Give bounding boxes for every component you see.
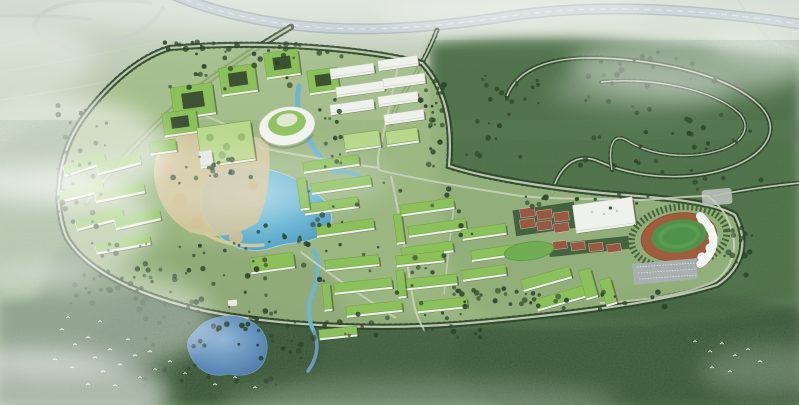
tree xyxy=(478,328,482,332)
tree xyxy=(495,137,498,140)
tree xyxy=(179,246,182,249)
tree xyxy=(263,308,269,314)
tree xyxy=(317,277,322,282)
tree xyxy=(650,295,654,299)
tree xyxy=(634,159,638,163)
tree xyxy=(200,266,205,271)
tree xyxy=(294,321,296,323)
tree xyxy=(553,299,558,304)
tree xyxy=(536,79,539,82)
tree xyxy=(462,304,467,309)
tree xyxy=(233,242,236,245)
tree xyxy=(525,200,530,205)
tree xyxy=(203,252,206,255)
tree xyxy=(441,82,447,88)
tree xyxy=(705,148,708,151)
tree xyxy=(456,336,459,339)
tree xyxy=(311,335,317,341)
tree xyxy=(223,249,227,253)
tree xyxy=(195,40,200,45)
tree xyxy=(485,135,491,141)
tree xyxy=(598,307,602,311)
tree xyxy=(458,233,463,238)
tree xyxy=(244,291,247,294)
tree xyxy=(474,151,480,157)
tree xyxy=(316,50,322,56)
tree xyxy=(186,85,191,90)
tree xyxy=(529,301,532,304)
tree xyxy=(751,234,754,237)
tree xyxy=(254,266,260,272)
tree xyxy=(444,193,449,198)
tree xyxy=(256,230,260,234)
tree xyxy=(452,293,455,296)
tree xyxy=(458,223,463,228)
tree xyxy=(275,384,277,386)
tree xyxy=(692,179,697,184)
tree xyxy=(463,300,466,303)
tree xyxy=(418,97,424,103)
tree xyxy=(497,123,502,128)
tree xyxy=(339,54,343,58)
tree xyxy=(435,102,438,105)
haze-band-center xyxy=(30,145,390,215)
tree xyxy=(459,291,465,297)
tree xyxy=(325,49,330,54)
tree xyxy=(437,139,442,144)
tree xyxy=(262,257,267,262)
tree xyxy=(662,304,668,310)
tree xyxy=(187,367,190,370)
plaza-garden-circle xyxy=(229,230,243,244)
tree xyxy=(198,244,202,248)
tree xyxy=(355,203,359,207)
tree xyxy=(237,343,240,346)
tree xyxy=(306,242,311,247)
tree xyxy=(644,130,648,134)
tree xyxy=(419,301,423,305)
tree xyxy=(655,289,661,295)
tree xyxy=(322,280,325,283)
tree xyxy=(298,43,302,47)
tree xyxy=(416,265,421,270)
tree xyxy=(562,306,566,310)
tree xyxy=(689,132,694,137)
tree xyxy=(425,267,427,269)
tree xyxy=(475,119,479,123)
tree xyxy=(341,221,343,223)
tennis-court xyxy=(553,222,569,233)
tree xyxy=(135,266,140,271)
tree xyxy=(474,332,477,335)
tree xyxy=(324,142,328,146)
tree xyxy=(257,56,263,62)
tree xyxy=(322,323,327,328)
tree xyxy=(360,324,363,327)
tree xyxy=(283,46,289,52)
tree xyxy=(377,246,379,248)
tree xyxy=(426,162,432,168)
tree xyxy=(460,313,462,315)
gym-roof-vent xyxy=(603,213,606,216)
tree xyxy=(228,306,230,308)
tree xyxy=(531,85,535,89)
tree xyxy=(742,253,748,259)
tree xyxy=(583,157,589,163)
tree xyxy=(731,138,734,141)
tree xyxy=(299,357,302,360)
tree xyxy=(211,282,215,286)
tree xyxy=(478,335,482,339)
tree xyxy=(162,367,167,372)
tree xyxy=(246,322,251,327)
tree xyxy=(325,250,328,253)
tree xyxy=(333,98,337,102)
tree xyxy=(263,223,267,227)
tree xyxy=(671,132,674,135)
tree xyxy=(744,272,749,277)
tree xyxy=(598,135,602,139)
tree xyxy=(222,56,227,61)
tree xyxy=(537,202,542,207)
canopy-scallop xyxy=(697,214,706,223)
aerial-render-viewport xyxy=(0,0,799,405)
tree xyxy=(202,343,206,347)
tree xyxy=(278,45,282,49)
tree xyxy=(578,163,583,168)
tree xyxy=(623,301,628,306)
tree xyxy=(684,117,689,122)
tree xyxy=(434,123,436,125)
tree xyxy=(501,286,506,291)
tree xyxy=(264,263,268,267)
tree xyxy=(296,348,302,354)
tree xyxy=(446,186,451,191)
courtyard-building xyxy=(162,109,201,139)
tree xyxy=(410,271,414,275)
tennis-court xyxy=(553,211,569,222)
tree xyxy=(268,376,274,382)
tree xyxy=(531,291,536,296)
tree xyxy=(301,262,306,267)
tree xyxy=(198,72,203,77)
tree xyxy=(433,79,438,84)
tree xyxy=(515,290,519,294)
tree xyxy=(493,298,498,303)
tree xyxy=(338,243,341,246)
tree xyxy=(252,52,257,57)
tree xyxy=(431,149,436,154)
tree xyxy=(191,41,195,45)
tree xyxy=(703,176,708,181)
tree xyxy=(248,310,251,313)
tree xyxy=(310,222,315,227)
tree xyxy=(226,46,232,52)
tree xyxy=(424,88,428,92)
tree xyxy=(194,72,198,76)
tree xyxy=(536,83,540,87)
tree xyxy=(471,288,476,293)
tree xyxy=(328,117,331,120)
tree xyxy=(476,296,481,301)
tree xyxy=(373,333,378,338)
tree xyxy=(431,328,434,331)
tree xyxy=(612,163,617,168)
canopy-scallop xyxy=(708,233,717,242)
tree xyxy=(267,49,270,52)
tree xyxy=(536,304,541,309)
tree xyxy=(430,270,434,274)
tree xyxy=(518,155,522,159)
tree xyxy=(424,314,426,316)
canopy-scallop xyxy=(705,223,714,232)
tree xyxy=(507,113,510,116)
tree xyxy=(431,111,434,114)
tree xyxy=(356,312,361,317)
tree xyxy=(223,87,226,90)
tree xyxy=(696,188,699,191)
tree xyxy=(706,141,710,145)
tree xyxy=(362,253,365,256)
tree xyxy=(484,75,486,77)
tree xyxy=(243,327,248,332)
tree xyxy=(442,87,445,90)
tree xyxy=(452,285,456,289)
tree xyxy=(295,42,298,45)
tree xyxy=(211,41,215,45)
tree xyxy=(445,316,449,320)
tree xyxy=(238,244,241,247)
tree xyxy=(537,293,541,297)
tree xyxy=(317,223,321,227)
tree xyxy=(440,123,445,128)
tree xyxy=(639,144,643,148)
tree xyxy=(200,45,206,51)
tree xyxy=(274,310,278,314)
tree xyxy=(254,316,259,321)
tree xyxy=(252,260,255,263)
tree xyxy=(228,66,233,71)
tree xyxy=(451,329,457,335)
tree xyxy=(251,63,257,69)
tree xyxy=(264,379,269,384)
tree xyxy=(192,254,196,258)
tree xyxy=(429,117,435,123)
tree xyxy=(758,178,763,183)
tree xyxy=(264,294,267,297)
tree xyxy=(318,108,321,111)
tree xyxy=(275,61,280,66)
gym-roof-vent xyxy=(616,210,619,213)
tree xyxy=(174,41,178,45)
scene-root xyxy=(0,0,799,405)
tree xyxy=(337,109,342,114)
tree xyxy=(479,293,482,296)
tree xyxy=(146,267,151,272)
tree xyxy=(439,91,443,95)
tree xyxy=(319,212,325,218)
tree xyxy=(183,46,189,52)
tree xyxy=(332,205,335,208)
tree xyxy=(449,324,453,328)
tree xyxy=(339,153,341,155)
tree xyxy=(731,233,736,238)
tree xyxy=(532,297,537,302)
tree xyxy=(337,319,343,325)
canopy-scallop xyxy=(697,252,706,261)
tree xyxy=(471,233,474,236)
tree xyxy=(344,333,347,336)
tree xyxy=(743,231,748,236)
cloud-northeast xyxy=(550,68,730,112)
tree xyxy=(187,268,192,273)
tree xyxy=(430,204,434,208)
tree xyxy=(730,228,735,233)
tree xyxy=(504,292,508,296)
tree xyxy=(216,328,220,332)
tree xyxy=(395,290,399,294)
tree xyxy=(488,97,493,102)
tree xyxy=(701,125,706,130)
tree xyxy=(335,120,339,124)
tennis-court xyxy=(519,218,535,229)
tree xyxy=(168,85,171,88)
tree xyxy=(348,334,351,337)
basketball-court xyxy=(589,242,604,251)
tree xyxy=(369,269,372,272)
tree xyxy=(729,252,735,258)
tree xyxy=(298,342,304,348)
tree xyxy=(287,82,293,88)
tree xyxy=(291,340,293,342)
tree xyxy=(440,108,445,113)
tree xyxy=(224,321,230,327)
tree xyxy=(292,57,295,60)
tree xyxy=(339,135,343,139)
basketball-court xyxy=(571,241,586,250)
tree xyxy=(327,222,331,226)
tree xyxy=(591,135,596,140)
tree xyxy=(735,140,738,143)
tree xyxy=(660,170,664,174)
tree xyxy=(436,87,440,91)
tree xyxy=(268,241,270,243)
tree xyxy=(723,255,726,258)
tree xyxy=(620,196,623,199)
tree xyxy=(436,92,439,95)
tree xyxy=(719,113,723,117)
tree xyxy=(635,202,638,205)
courtyard-building xyxy=(218,63,259,97)
tree xyxy=(224,51,226,53)
gym-roof-vent xyxy=(591,211,594,214)
basketball-court xyxy=(607,243,622,252)
tree xyxy=(245,273,251,279)
tree xyxy=(333,136,338,141)
plaza-garden-circle xyxy=(191,217,203,229)
tree xyxy=(594,198,597,201)
tree xyxy=(721,176,725,180)
tree xyxy=(441,311,444,314)
tree xyxy=(749,129,752,132)
tree xyxy=(424,104,428,108)
tree xyxy=(244,247,247,250)
tree xyxy=(543,194,549,200)
tree xyxy=(324,117,327,120)
tree xyxy=(271,340,274,343)
tree xyxy=(537,102,540,105)
tree xyxy=(499,90,504,95)
tree xyxy=(495,87,500,92)
tree xyxy=(519,301,524,306)
tree xyxy=(600,292,604,296)
tree xyxy=(509,302,513,306)
tree xyxy=(166,46,171,51)
tree xyxy=(283,56,285,58)
tree xyxy=(692,145,697,150)
tennis-court xyxy=(536,209,552,220)
tree xyxy=(180,379,184,383)
tree xyxy=(609,206,612,209)
tree xyxy=(515,81,518,84)
tree xyxy=(515,84,518,87)
tree xyxy=(575,197,579,201)
tree xyxy=(315,217,320,222)
tree xyxy=(259,356,264,361)
tree xyxy=(269,334,273,338)
tree xyxy=(163,40,167,44)
tree xyxy=(235,42,239,46)
tree xyxy=(234,379,239,384)
tree xyxy=(285,323,290,328)
tree xyxy=(441,253,446,258)
tree xyxy=(263,276,267,280)
tree xyxy=(297,240,301,244)
canopy-scallop xyxy=(705,243,714,252)
tree xyxy=(525,293,527,295)
tree xyxy=(525,196,527,198)
tree xyxy=(432,165,435,168)
tree xyxy=(412,255,417,260)
tree xyxy=(646,195,649,198)
basketball-court xyxy=(553,240,568,249)
tree xyxy=(424,327,428,331)
tree xyxy=(289,351,292,354)
tree xyxy=(285,76,288,79)
tree xyxy=(143,261,148,266)
tree xyxy=(257,329,260,332)
tree xyxy=(736,261,738,263)
tree xyxy=(739,226,744,231)
tree xyxy=(465,153,468,156)
tree xyxy=(205,74,208,77)
tree xyxy=(269,312,273,316)
tree xyxy=(185,272,188,275)
tree xyxy=(193,364,197,368)
tree xyxy=(509,99,514,104)
tree xyxy=(385,316,390,321)
tree xyxy=(617,192,621,196)
tree xyxy=(428,123,433,128)
tree xyxy=(369,320,374,325)
tree xyxy=(488,122,490,124)
tree xyxy=(282,233,285,236)
tree xyxy=(158,268,162,272)
tree xyxy=(747,249,752,254)
tree xyxy=(195,53,198,56)
tree xyxy=(555,294,561,300)
tree xyxy=(505,97,509,101)
